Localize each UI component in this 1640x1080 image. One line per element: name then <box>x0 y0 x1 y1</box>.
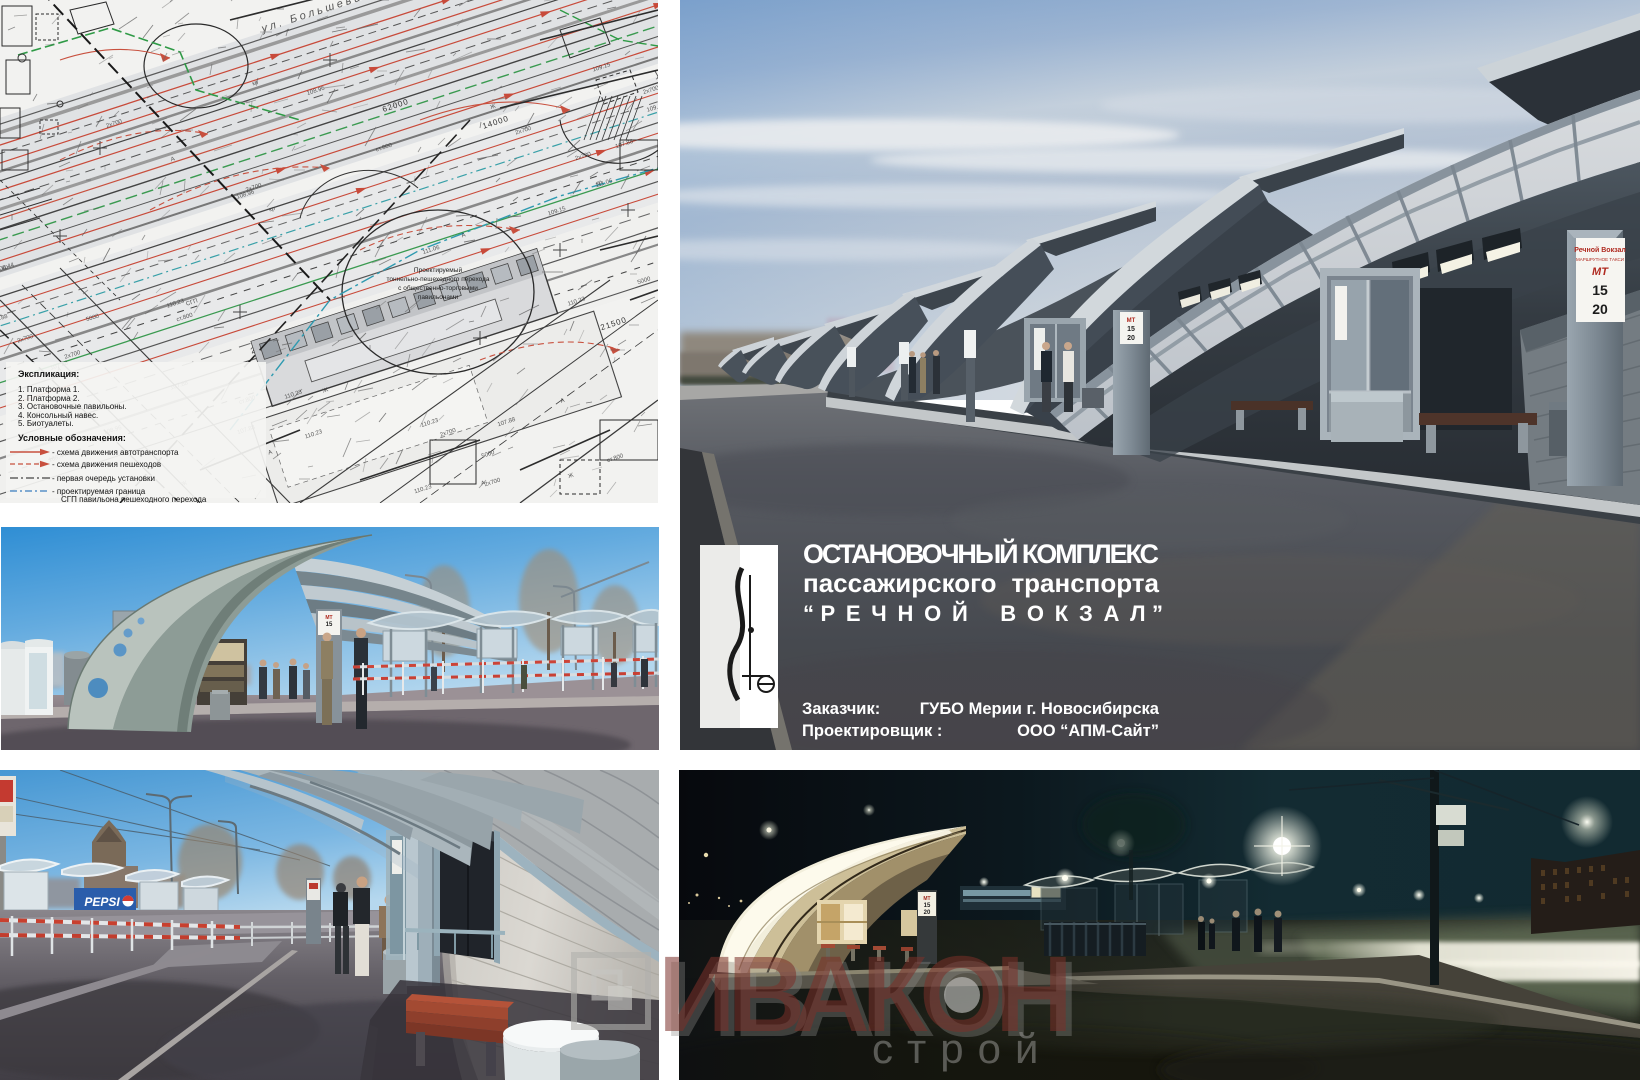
svg-text:павильонами: павильонами <box>418 294 459 301</box>
svg-text:МТ: МТ <box>1592 266 1609 278</box>
svg-text:“ Р Е Ч Н О Й В О К З А Л ”: “ Р Е Ч Н О Й В О К З А Л ” <box>803 601 1163 626</box>
svg-text:15: 15 <box>326 622 333 628</box>
svg-text:пассажирского: пассажирского <box>803 568 997 598</box>
svg-text:15: 15 <box>1127 326 1135 333</box>
svg-text:тоннельно-пешеходного перехода: тоннельно-пешеходного перехода <box>386 276 489 283</box>
svg-text:- первая очередь установки: - первая очередь установки <box>52 474 155 483</box>
svg-text:ООО “АПМ-Сайт”: ООО “АПМ-Сайт” <box>1017 722 1159 740</box>
svg-text:20: 20 <box>924 910 931 916</box>
svg-text:Речной Вокзал: Речной Вокзал <box>1574 246 1626 254</box>
svg-text:МТ: МТ <box>325 615 332 621</box>
svg-text:15: 15 <box>1592 282 1608 298</box>
svg-text:СГП павильона пешеходного пере: СГП павильона пешеходного перехода <box>61 495 207 503</box>
svg-text:1. Платформа 1.: 1. Платформа 1. <box>18 385 80 394</box>
svg-text:Заказчик:: Заказчик: <box>802 700 880 718</box>
svg-text:3. Остановочные павильоны.: 3. Остановочные павильоны. <box>18 402 127 411</box>
svg-text:- схема движения автотранспорт: - схема движения автотранспорта <box>52 448 179 457</box>
svg-text:5. Биотуалеты.: 5. Биотуалеты. <box>18 419 74 428</box>
svg-text:- схема движения пешеходов: - схема движения пешеходов <box>52 460 161 469</box>
svg-text:20: 20 <box>1592 301 1608 317</box>
svg-text:строй: строй <box>872 1025 1052 1072</box>
svg-text:PEPSI: PEPSI <box>84 895 120 909</box>
svg-text:Экспликация:: Экспликация: <box>18 369 79 379</box>
svg-text:ОСТАНОВОЧНЫЙ КОМПЛЕКС: ОСТАНОВОЧНЫЙ КОМПЛЕКС <box>803 538 1159 569</box>
svg-text:ГУБО Мерии г. Новосибирска: ГУБО Мерии г. Новосибирска <box>920 700 1160 718</box>
svg-text:МТ: МТ <box>923 896 930 902</box>
svg-text:транспорта: транспорта <box>1011 568 1159 598</box>
svg-text:МАРШРУТНОЕ ТАКСИ: МАРШРУТНОЕ ТАКСИ <box>1576 257 1624 262</box>
svg-text:МТ: МТ <box>1127 318 1136 324</box>
svg-text:Проектируемый: Проектируемый <box>414 266 463 274</box>
svg-text:Проектировщик :: Проектировщик : <box>802 722 942 740</box>
svg-text:20: 20 <box>1127 335 1135 342</box>
svg-text:15: 15 <box>924 903 931 909</box>
svg-text:Условные обозначения:: Условные обозначения: <box>18 433 126 443</box>
svg-text:с общественно-торговыми: с общественно-торговыми <box>398 284 478 292</box>
